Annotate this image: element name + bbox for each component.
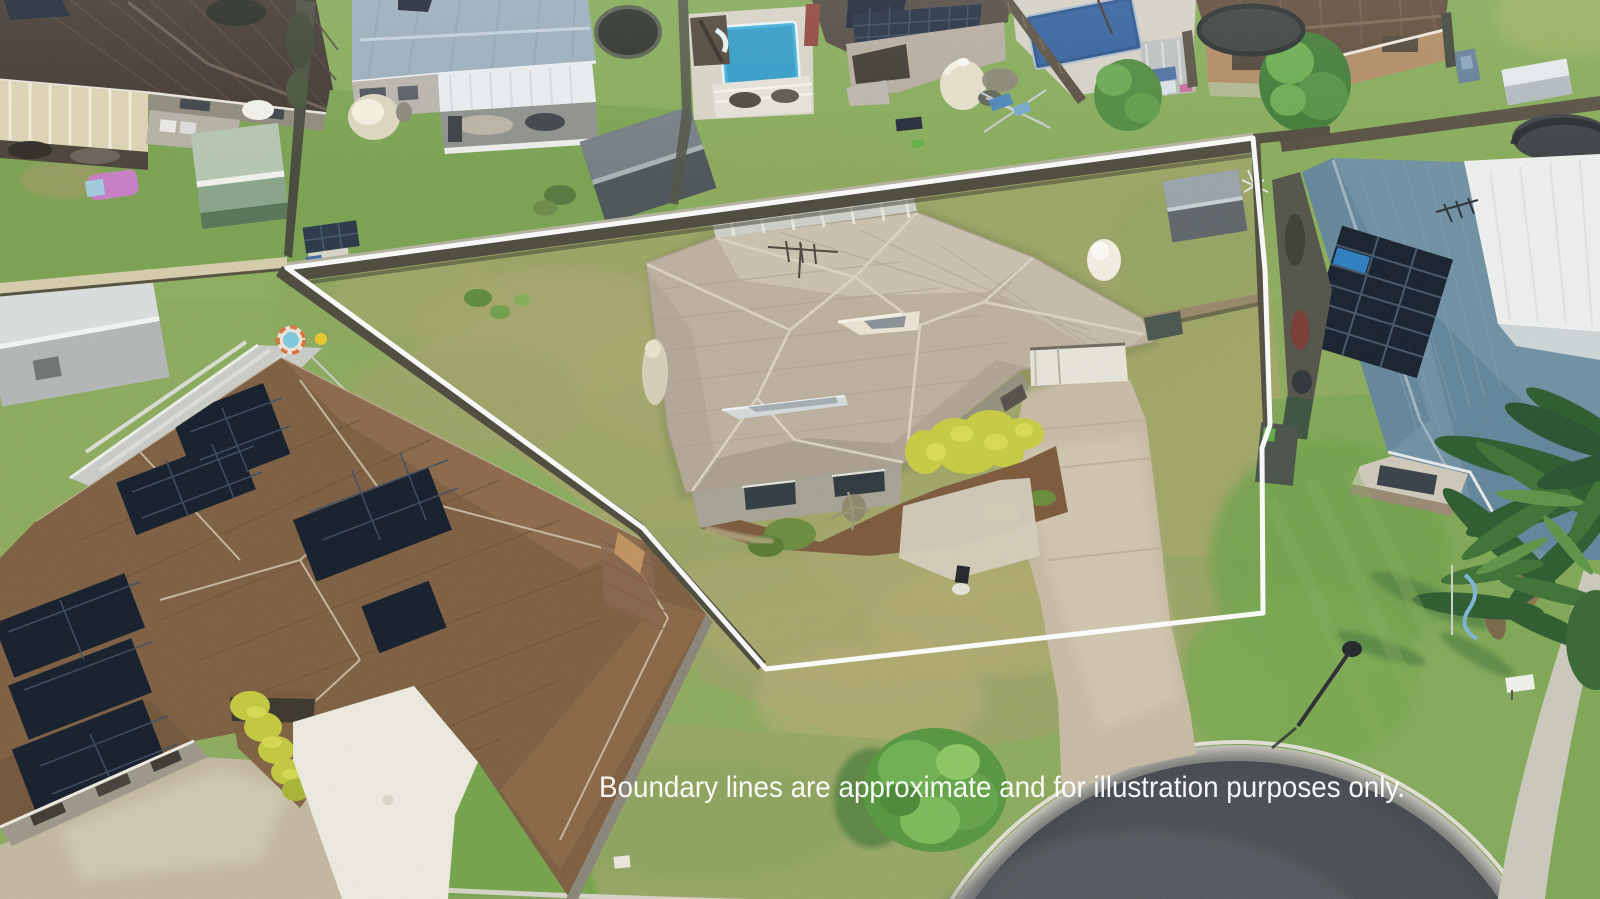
svg-text:Boundary lines are approximate: Boundary lines are approximate and for i…	[599, 771, 1405, 804]
